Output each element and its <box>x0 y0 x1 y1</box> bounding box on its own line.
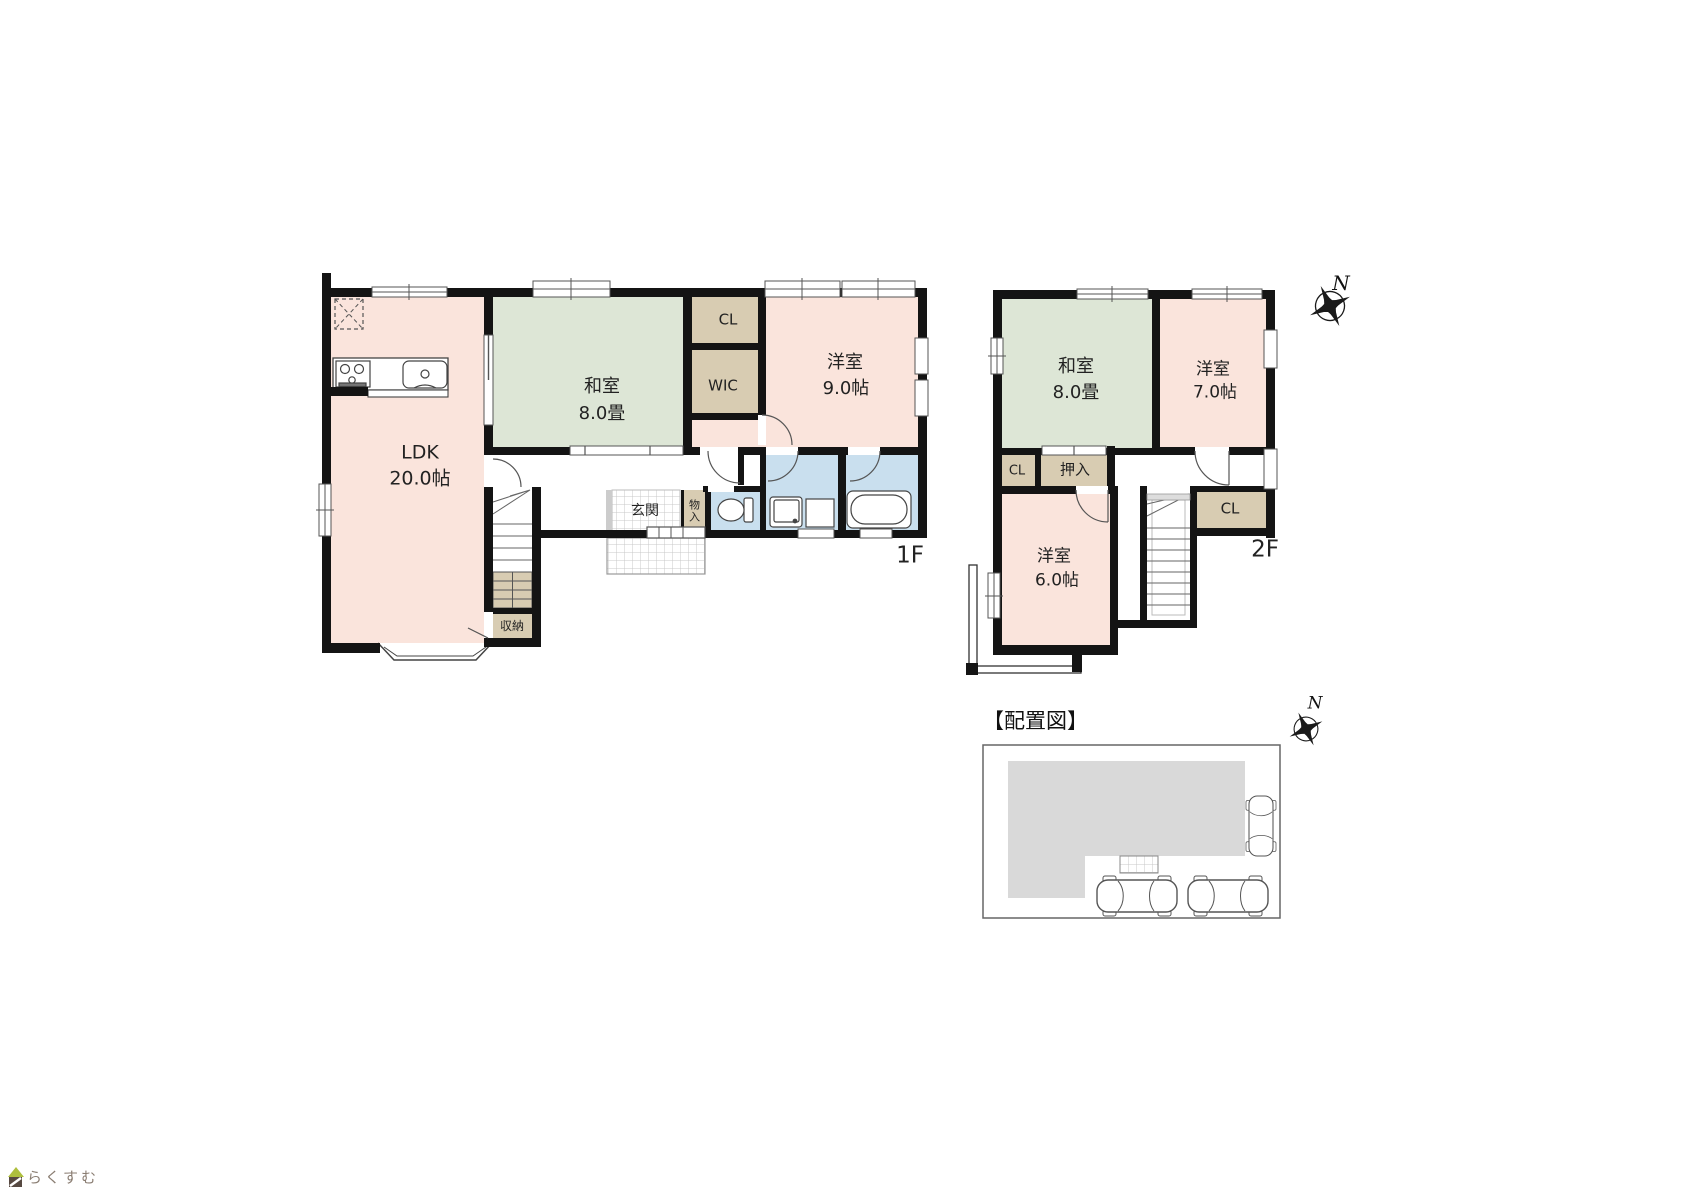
washing-machine-icon <box>806 499 834 527</box>
kitchen-sink-icon <box>403 361 447 388</box>
north-label: N <box>1332 273 1350 293</box>
floor-plan-page: LDK 20.0帖 和室 8.0畳 洋室 9.0帖 CL WIC 玄関 物入 収… <box>0 0 1684 1190</box>
window-icon <box>1264 330 1277 368</box>
car-icon <box>1188 876 1268 916</box>
site-plan <box>983 745 1280 918</box>
stair-landing-edge <box>1147 494 1190 500</box>
f1-closet-label: CL <box>719 313 738 328</box>
f2-closet-left-label: CL <box>1009 465 1025 478</box>
floor-plan-drawing <box>0 0 1684 1190</box>
window-icon <box>915 338 928 374</box>
f1-small-storage-label: 物入 <box>689 499 700 523</box>
f1-entrance-label: 玄関 <box>631 504 659 518</box>
door-arc-icon <box>493 459 521 487</box>
entry-door-icon <box>647 527 705 538</box>
door-gap <box>700 447 738 455</box>
f2-youshitsu6-room <box>1002 494 1110 645</box>
car-icon <box>1246 796 1276 856</box>
window-icon <box>860 529 892 538</box>
door-gap <box>484 455 493 487</box>
window-icon <box>1264 449 1277 489</box>
f1-entrance-step <box>606 490 612 532</box>
counter-edge <box>368 390 448 397</box>
door-gap <box>848 447 880 455</box>
door-gap <box>484 612 493 638</box>
f2-washitsu-size: 8.0畳 <box>1053 384 1100 402</box>
door-gap <box>766 447 798 455</box>
f2-youshitsu7-name: 洋室 <box>1196 362 1230 379</box>
window-icon <box>915 380 928 416</box>
f2-floor-label: 2F <box>1251 539 1279 562</box>
sliding-door-icon <box>570 446 683 455</box>
f1-wic-label: WIC <box>708 379 738 394</box>
f1-youshitsu9-size: 9.0帖 <box>823 380 870 398</box>
door-gap <box>708 486 734 492</box>
floor2-plan <box>966 286 1277 675</box>
logo-house-icon <box>8 1167 24 1187</box>
logo-text: らくすむ <box>27 1167 99 1188</box>
f1-washitsu-room <box>493 297 683 447</box>
compass-rose-icon <box>1301 277 1359 335</box>
f1-youshitsu9-name: 洋室 <box>827 354 863 372</box>
toilet-tank-icon <box>744 498 753 522</box>
f2-youshitsu6-size: 6.0帖 <box>1035 573 1079 590</box>
door-gap <box>758 415 766 445</box>
f2-oshiire-label: 押入 <box>1060 463 1090 478</box>
door-arc-icon <box>708 451 740 483</box>
f1-stairs <box>493 487 532 608</box>
door-arc-icon <box>1195 451 1229 485</box>
f2-youshitsu7-size: 7.0帖 <box>1193 385 1237 402</box>
site-plan-title: 【配置図】 <box>983 705 1088 735</box>
door-gap <box>1076 486 1108 494</box>
f1-ldk-name: LDK <box>401 444 439 463</box>
f1-bay-window <box>378 643 492 660</box>
floor1-plan <box>316 273 928 660</box>
site-porch <box>1120 856 1158 873</box>
f1-ldk-size: 20.0帖 <box>389 470 450 489</box>
f1-porch <box>607 538 705 574</box>
f2-closet-right-label: CL <box>1221 502 1240 517</box>
f1-washitsu-size: 8.0畳 <box>579 405 626 423</box>
door-gap <box>1195 447 1229 455</box>
toilet-icon <box>718 499 744 521</box>
f1-storage-label: 収納 <box>500 620 524 632</box>
f1-floor-label: 1F <box>896 545 924 568</box>
compass-rose-icon <box>1282 705 1330 753</box>
window-icon <box>798 529 834 538</box>
bathtub-icon <box>847 491 911 528</box>
f2-youshitsu6-name: 洋室 <box>1037 549 1071 566</box>
f2-stairs <box>1147 448 1190 620</box>
north-label: N <box>1308 696 1323 713</box>
f1-washitsu-name: 和室 <box>584 378 620 396</box>
f2-washitsu-name: 和室 <box>1058 358 1094 376</box>
car-icon <box>1097 876 1177 916</box>
